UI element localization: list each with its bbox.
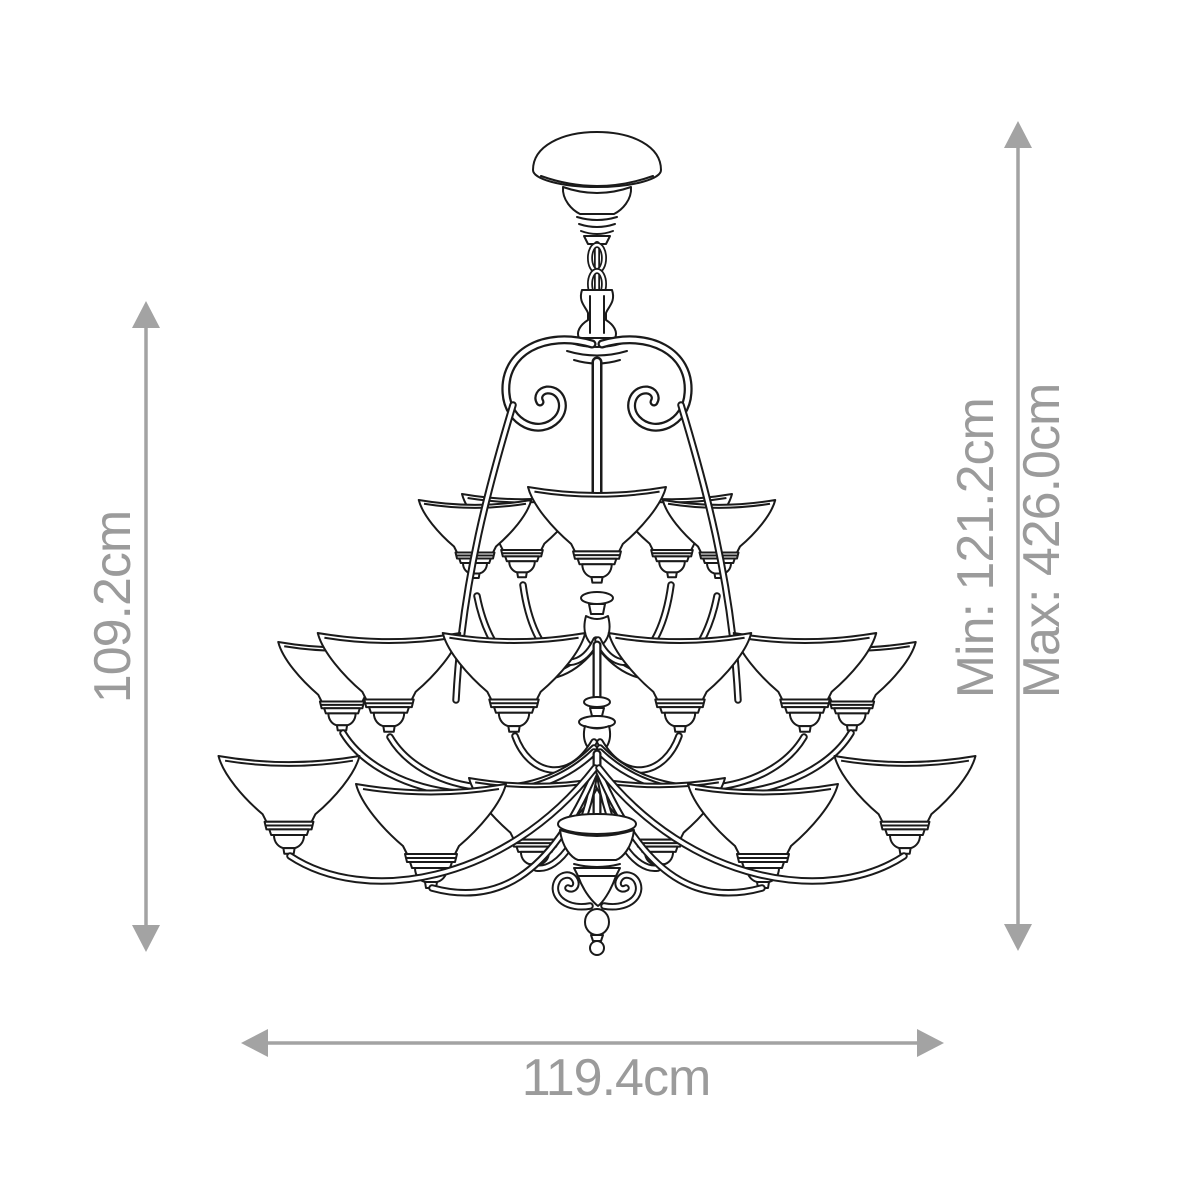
stem-connector [567,290,627,364]
middle-hub [579,697,615,754]
height-dimension-label: 109.2cm [83,511,143,703]
lamp-shade [835,756,976,854]
dimension-diagram: 109.2cm Min: 121.2cm Max: 426.0cm 119.4c… [0,0,1200,1200]
hang-range-dimension-label: Min: 121.2cm Max: 426.0cm [943,384,1075,699]
lamp-shade [443,633,586,732]
min-height-label: Min: 121.2cm [943,384,1009,699]
lamp-shade [219,756,360,854]
bottom-bowl-finial [555,814,638,955]
ceiling-canopy [533,132,661,244]
chandelier-drawing [219,132,976,955]
max-height-label: Max: 426.0cm [1009,384,1075,699]
width-dimension-label: 119.4cm [522,1048,711,1108]
lamp-shade [609,633,752,732]
